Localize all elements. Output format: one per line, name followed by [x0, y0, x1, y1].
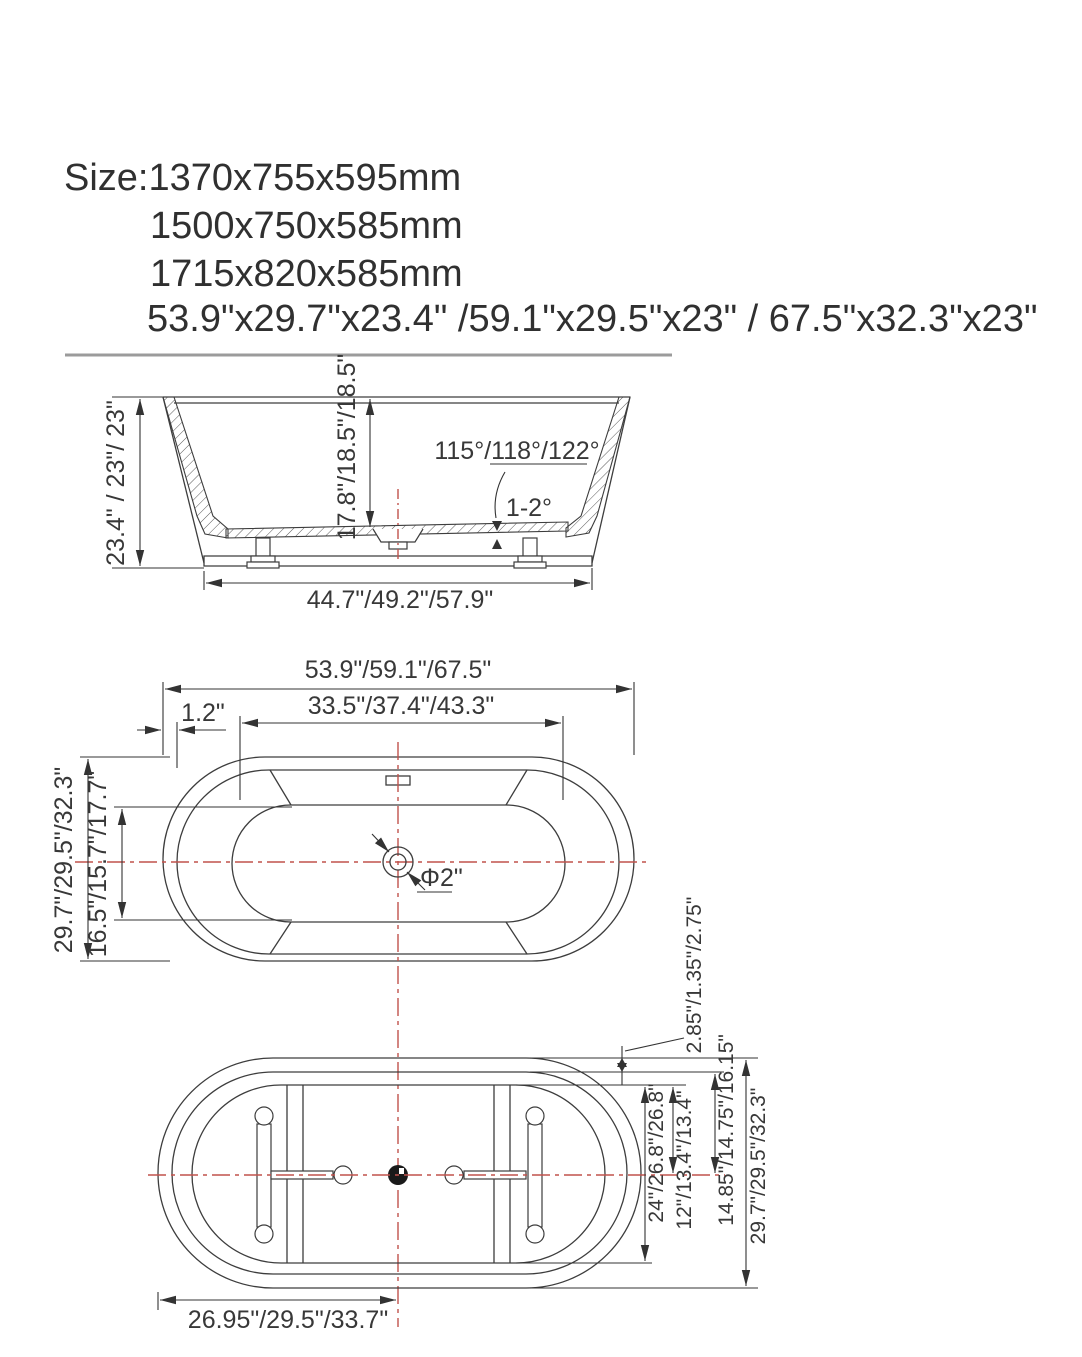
bottom-view: 2.85"/1.35"/2.75" 24"/26.8"/26.8" 12"/13… — [148, 897, 770, 1334]
bottom-inner-width-label: 24"/26.8"/26.8" — [645, 1083, 668, 1222]
top-view: Φ2" 53.9"/59.1"/67.5" 33.5"/37.4"/43.3" … — [50, 656, 650, 1327]
top-inner-width-label: 16.5"/15.7"/17.7" — [84, 771, 112, 958]
side-right-wall — [566, 397, 630, 537]
bottom-dim-inner-width: 24"/26.8"/26.8" — [645, 1083, 668, 1261]
top-rim-width-label: 1.2" — [181, 699, 225, 727]
top-drain: Φ2" — [372, 834, 463, 892]
top-corner-br — [506, 922, 527, 954]
side-height-label: 23.4" / 23"/ 23" — [102, 400, 130, 566]
bottom-center-to-rim-label: 14.85"/14.75"/16.15" — [715, 1034, 738, 1226]
top-dim-inner-width: 16.5"/15.7"/17.7" — [84, 771, 292, 958]
side-dim-base-width: 44.7"/49.2"/57.9" — [204, 568, 592, 614]
side-foot-right — [514, 538, 546, 568]
bottom-rim-gap-label: 2.85"/1.35"/2.75" — [683, 897, 706, 1054]
title-line-2: 1500x750x585mm — [150, 205, 463, 247]
title-line-3: 1715x820x585mm — [150, 253, 463, 295]
top-corner-bl — [270, 922, 291, 954]
title-block: Size:1370x755x595mm 1500x750x585mm 1715x… — [64, 157, 1037, 340]
top-corner-tr — [506, 770, 527, 805]
top-dim-inner-length: 33.5"/37.4"/43.3" — [240, 692, 563, 800]
side-foot-left — [247, 538, 279, 568]
side-left-wall — [163, 397, 228, 538]
side-view: 23.4" / 23"/ 23" 17.8"/18.5"/18.5" 115°/… — [102, 354, 630, 614]
title-line-1: Size:1370x755x595mm — [64, 157, 461, 199]
top-corner-tl — [270, 770, 291, 805]
bottom-overall-width-label: 29.7"/29.5"/32.3" — [747, 1088, 770, 1245]
side-wall-angle: 115°/118°/122° — [434, 437, 599, 465]
side-depth-label: 17.8"/18.5"/18.5" — [333, 354, 361, 541]
bathtub-spec-sheet: Size:1370x755x595mm 1500x750x585mm 1715x… — [0, 0, 1082, 1357]
side-dim-depth: 17.8"/18.5"/18.5" — [333, 354, 370, 541]
top-drain-label: Φ2" — [420, 864, 463, 892]
bottom-dim-center-to-rim: 14.85"/14.75"/16.15" — [715, 1034, 738, 1226]
bottom-dim-center-to-inner: 12"/13.4"/13.4" — [673, 1087, 696, 1230]
top-dim-rim-width: 1.2" — [137, 699, 226, 768]
bottom-end-to-center-label: 26.95"/29.5"/33.7" — [188, 1306, 388, 1334]
side-floor-slope: 1-2° — [492, 472, 552, 549]
top-overall-length-label: 53.9"/59.1"/67.5" — [305, 656, 492, 684]
bottom-dim-end-to-center: 26.95"/29.5"/33.7" — [158, 1292, 396, 1334]
title-line-4: 53.9"x29.7"x23.4" /59.1"x29.5"x23" / 67.… — [147, 298, 1037, 340]
bottom-dim-rim-gap: 2.85"/1.35"/2.75" — [617, 897, 706, 1085]
side-base-width-label: 44.7"/49.2"/57.9" — [307, 586, 494, 614]
side-floor-slope-label: 1-2° — [506, 494, 552, 522]
bottom-center-to-inner-label: 12"/13.4"/13.4" — [673, 1090, 696, 1229]
side-wall-angle-label: 115°/118°/122° — [434, 437, 599, 465]
top-overall-width-label: 29.7"/29.5"/32.3" — [50, 767, 78, 954]
bottom-dim-overall-width: 29.7"/29.5"/32.3" — [746, 1060, 770, 1286]
top-inner-length-label: 33.5"/37.4"/43.3" — [308, 692, 495, 720]
